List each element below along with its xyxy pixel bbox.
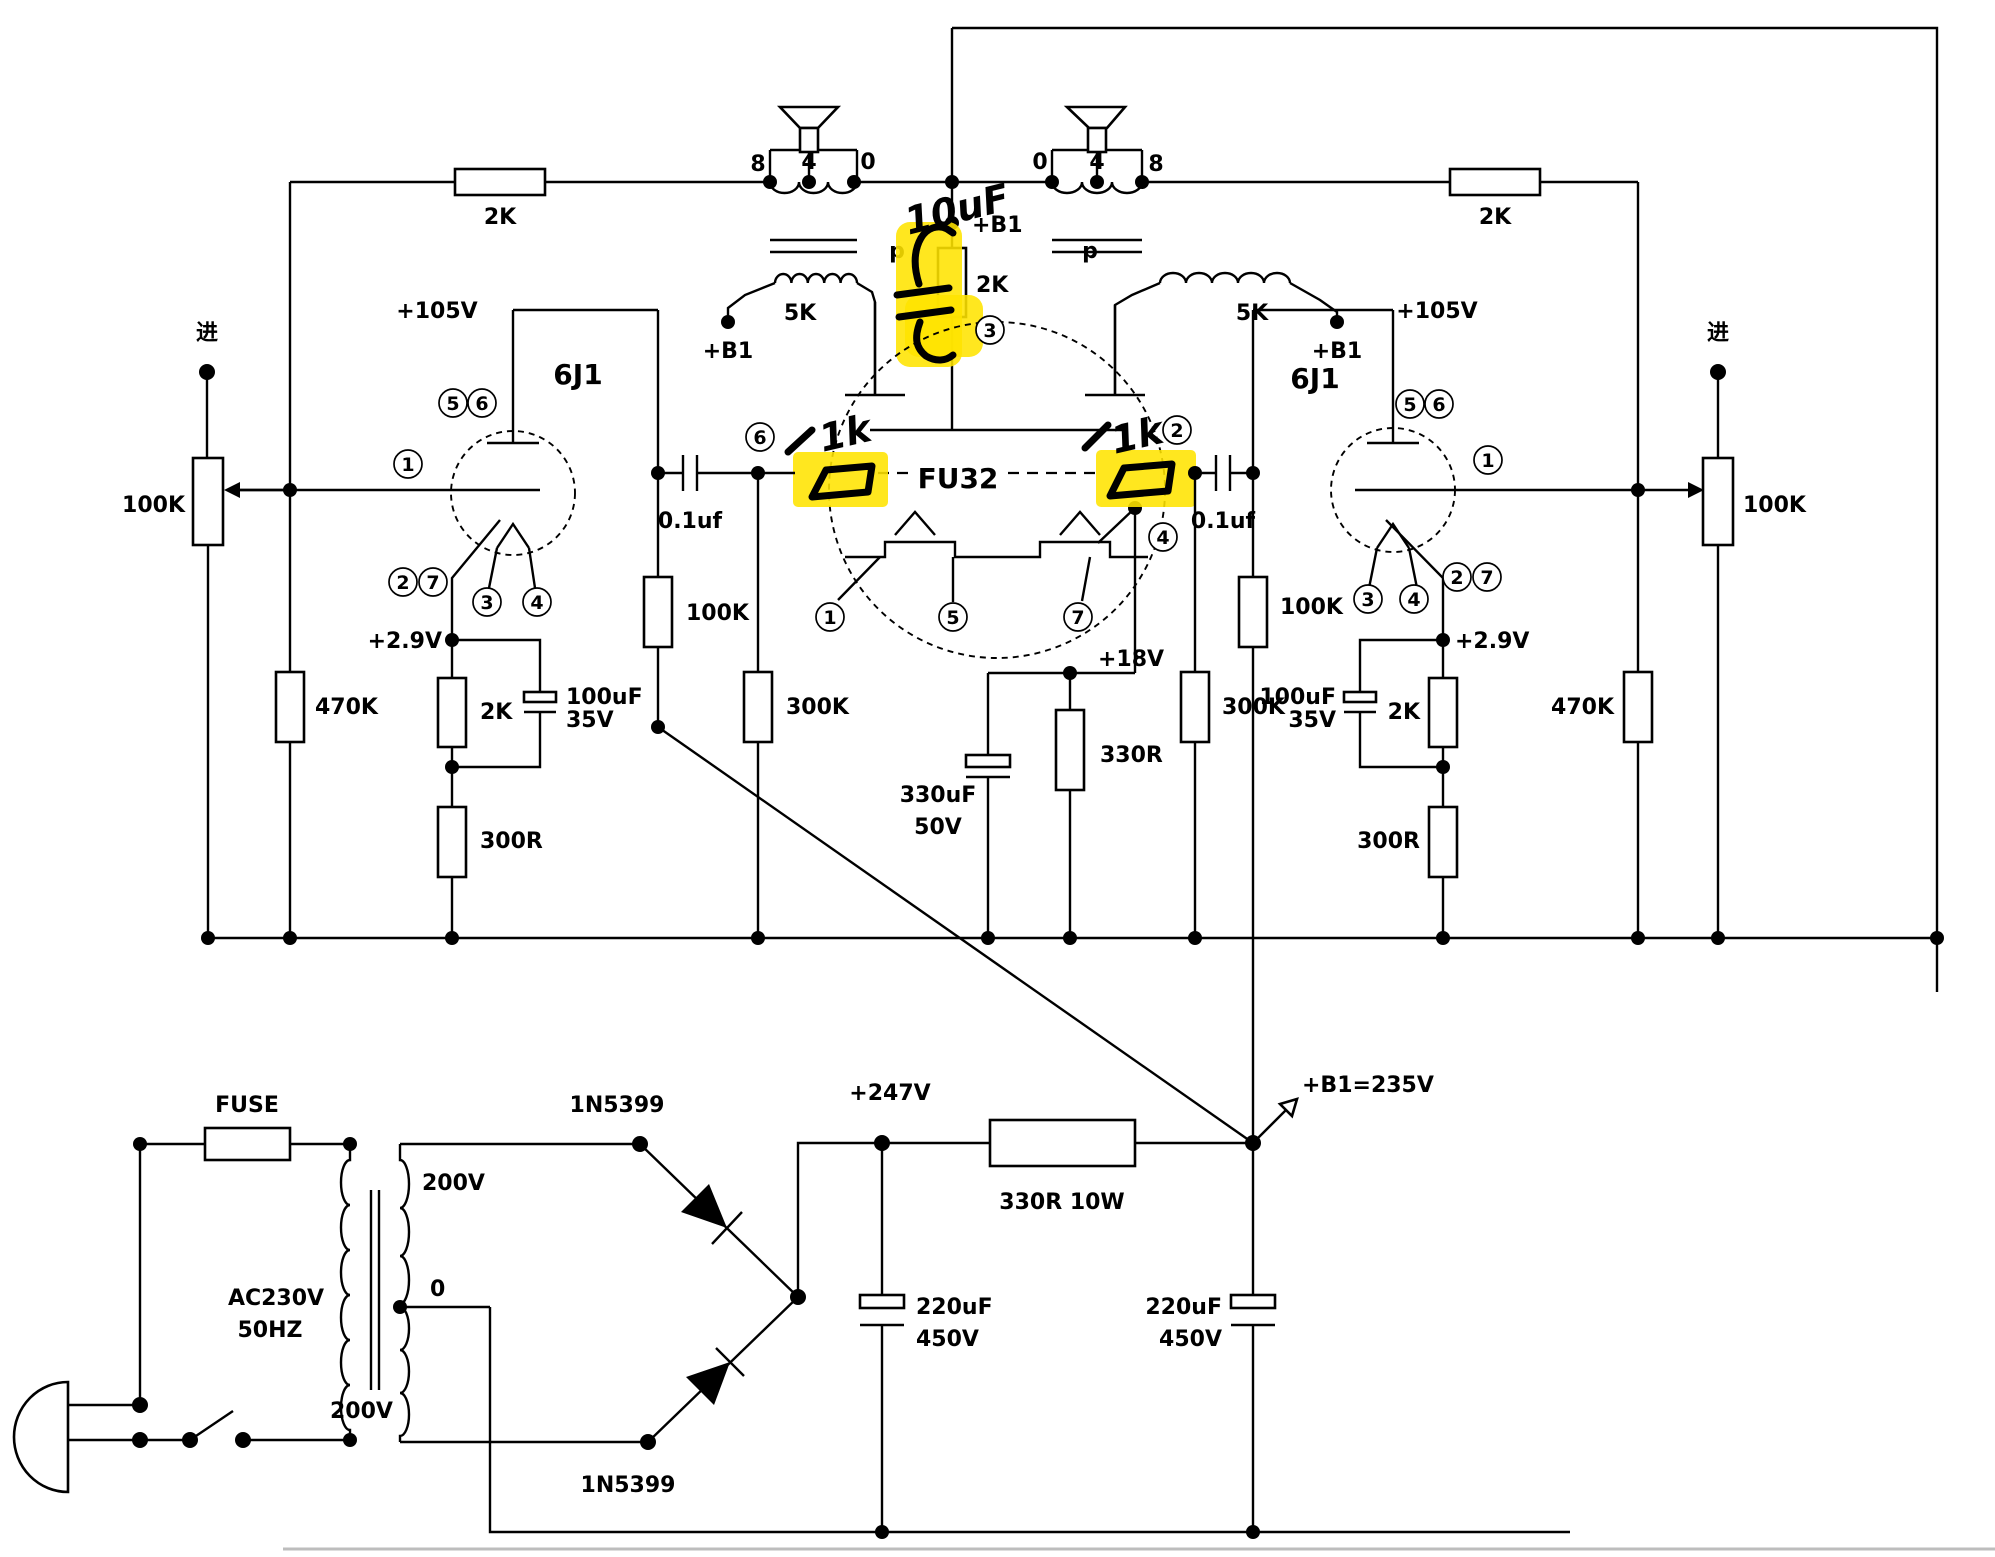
filter-cap2-voltage: 450V bbox=[1159, 1327, 1222, 1352]
6j1-right-label: 6J1 bbox=[1290, 362, 1339, 395]
fu32-cathode-resistor-label: 330R bbox=[1100, 743, 1163, 768]
svg-text:3: 3 bbox=[983, 320, 996, 342]
filter-cap1-label: 220uF bbox=[916, 1295, 993, 1320]
470k-right-label: 470K bbox=[1551, 695, 1615, 720]
input-left: 进 100K bbox=[122, 321, 297, 945]
coupling-cap-right-label: 0.1uf bbox=[1191, 509, 1256, 534]
load-100k-right-label: 100K bbox=[1280, 595, 1344, 620]
speaker-left-icon bbox=[780, 107, 838, 152]
pin-6j1l-6: 6 bbox=[468, 389, 496, 417]
input-left-label: 进 bbox=[196, 321, 218, 346]
pin-6j1l-7: 7 bbox=[419, 568, 447, 596]
fu32-label: FU32 bbox=[918, 462, 999, 495]
svg-text:7: 7 bbox=[1480, 567, 1493, 589]
plate-voltage-left: +105V bbox=[396, 299, 477, 324]
secondary-200v-bottom-label: 200V bbox=[330, 1399, 393, 1424]
tap-0-left-label: 0 bbox=[860, 150, 875, 175]
svg-text:2: 2 bbox=[1450, 567, 1463, 589]
tail-300r-right-label: 300R bbox=[1357, 829, 1420, 854]
grid-resistor-right: 470K bbox=[1551, 483, 1652, 945]
cathode-voltage-right: +2.9V bbox=[1455, 629, 1529, 654]
dropper-resistor-label: 330R 10W bbox=[999, 1190, 1124, 1215]
tap-8-left-label: 8 bbox=[750, 152, 765, 177]
fu32-cathode-cap-label: 330uF bbox=[900, 783, 977, 808]
svg-text:2: 2 bbox=[396, 572, 409, 594]
pin-6j1r-3: 3 bbox=[1354, 585, 1382, 613]
pin-6j1l-1: 1 bbox=[394, 450, 422, 478]
svg-text:1: 1 bbox=[823, 607, 836, 629]
coupling-cap-left-label: 0.1uf bbox=[658, 509, 723, 534]
pin-6j1r-6: 6 bbox=[1425, 390, 1453, 418]
output-transformer-right: 0 4 8 5K +B1 p bbox=[1032, 150, 1362, 395]
tap-8-right-label: 8 bbox=[1148, 152, 1163, 177]
mains-voltage-label: AC230V bbox=[228, 1286, 324, 1311]
svg-text:7: 7 bbox=[1071, 607, 1084, 629]
secondary-200v-top-label: 200V bbox=[422, 1171, 485, 1196]
gridleak-300k-left-label: 300K bbox=[786, 695, 850, 720]
pin-fu32-3: 3 bbox=[976, 316, 1004, 344]
b1-voltage-label: +B1=235V bbox=[1302, 1073, 1434, 1098]
fuse-label: FUSE bbox=[215, 1093, 279, 1118]
b-plus-filter: +247V 330R 10W +B1=235V 220uF 450V 220uF… bbox=[490, 1073, 1570, 1539]
mains-plug-icon bbox=[14, 1382, 190, 1492]
load-100k-left-label: 100K bbox=[686, 601, 750, 626]
pin-fu32-2: 2 bbox=[1163, 416, 1191, 444]
pot-right-label: 100K bbox=[1743, 493, 1807, 518]
tap-0-right-label: 0 bbox=[1032, 150, 1047, 175]
grid-resistor-left: 470K bbox=[276, 490, 379, 945]
pin-6j1l-5: 5 bbox=[439, 389, 467, 417]
pin-fu32-5: 5 bbox=[939, 603, 967, 631]
svg-text:2: 2 bbox=[1170, 420, 1183, 442]
bypass-cap-right-label: 100uF bbox=[1259, 685, 1336, 710]
b1-left-label: +B1 bbox=[703, 339, 754, 364]
tail-300r-left-label: 300R bbox=[480, 829, 543, 854]
svg-text:6: 6 bbox=[475, 393, 488, 415]
svg-text:6: 6 bbox=[753, 427, 766, 449]
annotation-1k-left: 1k bbox=[788, 405, 888, 507]
svg-text:4: 4 bbox=[1156, 527, 1169, 549]
pin-fu32-7: 7 bbox=[1064, 603, 1092, 631]
bypass-cap-left-label: 100uF bbox=[566, 685, 643, 710]
tap-4-right-label: 4 bbox=[1089, 150, 1104, 175]
fu32-cathode-cap-voltage: 50V bbox=[914, 815, 962, 840]
6j1-left-label: 6J1 bbox=[553, 358, 602, 391]
b1-right-label: +B1 bbox=[1312, 339, 1363, 364]
diode-bottom-label: 1N5399 bbox=[581, 1473, 676, 1498]
pin-6j1l-2: 2 bbox=[389, 568, 417, 596]
mains-frequency-label: 50HZ bbox=[238, 1318, 303, 1343]
cathode-2k-left-label: 2K bbox=[480, 700, 513, 725]
svg-text:5: 5 bbox=[446, 393, 459, 415]
feedback-2k-left-label: 2K bbox=[484, 205, 517, 230]
feedback-2k-right-label: 2K bbox=[1479, 205, 1512, 230]
pin-6j1r-7: 7 bbox=[1473, 563, 1501, 591]
cathode-voltage-left: +2.9V bbox=[368, 629, 442, 654]
tube-amp-schematic: 8 4 0 5K +B1 p 0 4 8 5K +B1 p 2K 2K bbox=[0, 0, 1995, 1557]
svg-text:5: 5 bbox=[1403, 394, 1416, 416]
470k-left-label: 470K bbox=[315, 695, 379, 720]
svg-text:7: 7 bbox=[426, 572, 439, 594]
bypass-cap-right-voltage: 35V bbox=[1288, 708, 1336, 733]
tap-4-left-label: 4 bbox=[801, 150, 816, 175]
pin-fu32-1: 1 bbox=[816, 603, 844, 631]
power-transformer: AC230V 50HZ 200V 0 200V bbox=[228, 1144, 648, 1442]
cathode-network-right: +2.9V 2K 100uF 35V 300R bbox=[1259, 629, 1529, 945]
svg-text:1: 1 bbox=[401, 454, 414, 476]
secondary-0-label: 0 bbox=[430, 1277, 445, 1302]
svg-text:4: 4 bbox=[1407, 589, 1420, 611]
fu32-cathode-voltage: +18V bbox=[1098, 647, 1164, 672]
filter-cap2-label: 220uF bbox=[1145, 1295, 1222, 1320]
input-right-label: 进 bbox=[1707, 321, 1729, 346]
p-right-label: p bbox=[1082, 239, 1098, 264]
pin-6j1l-4: 4 bbox=[523, 588, 551, 616]
svg-text:3: 3 bbox=[1361, 589, 1374, 611]
fu32-cathode-network: +18V 330R 330uF 50V bbox=[900, 508, 1164, 945]
pin-6j1r-1: 1 bbox=[1474, 446, 1502, 474]
svg-text:6: 6 bbox=[1432, 394, 1445, 416]
primary-5k-left-label: 5K bbox=[784, 301, 817, 326]
bypass-cap-left-voltage: 35V bbox=[566, 708, 614, 733]
input-right: 进 100K bbox=[1703, 321, 1807, 945]
pin-6j1r-4: 4 bbox=[1400, 585, 1428, 613]
plate-voltage-right: +105V bbox=[1396, 299, 1477, 324]
fuse: FUSE bbox=[133, 1093, 357, 1405]
rectifier: 1N5399 1N5399 bbox=[570, 1093, 806, 1498]
cathode-2k-right-label: 2K bbox=[1388, 700, 1421, 725]
pin-6j1r-2: 2 bbox=[1443, 563, 1471, 591]
svg-text:5: 5 bbox=[946, 607, 959, 629]
pin-fu32-4: 4 bbox=[1149, 523, 1177, 551]
speaker-right-icon bbox=[1067, 107, 1125, 152]
diode-top-label: 1N5399 bbox=[570, 1093, 665, 1118]
pot-left-label: 100K bbox=[122, 493, 186, 518]
svg-text:1: 1 bbox=[1481, 450, 1494, 472]
pin-fu32-6: 6 bbox=[746, 423, 774, 451]
rectified-voltage-label: +247V bbox=[849, 1081, 930, 1106]
filter-cap1-voltage: 450V bbox=[916, 1327, 979, 1352]
pin-6j1r-5: 5 bbox=[1396, 390, 1424, 418]
svg-text:4: 4 bbox=[530, 592, 543, 614]
pin-6j1l-3: 3 bbox=[473, 588, 501, 616]
screen-2k-label: 2K bbox=[976, 273, 1009, 298]
cathode-network-left: +2.9V 2K 100uF 35V 300R bbox=[368, 629, 643, 945]
tube-6j1-left: +105V 6J1 1 5 6 2 7 3 4 bbox=[238, 299, 658, 640]
svg-text:3: 3 bbox=[480, 592, 493, 614]
